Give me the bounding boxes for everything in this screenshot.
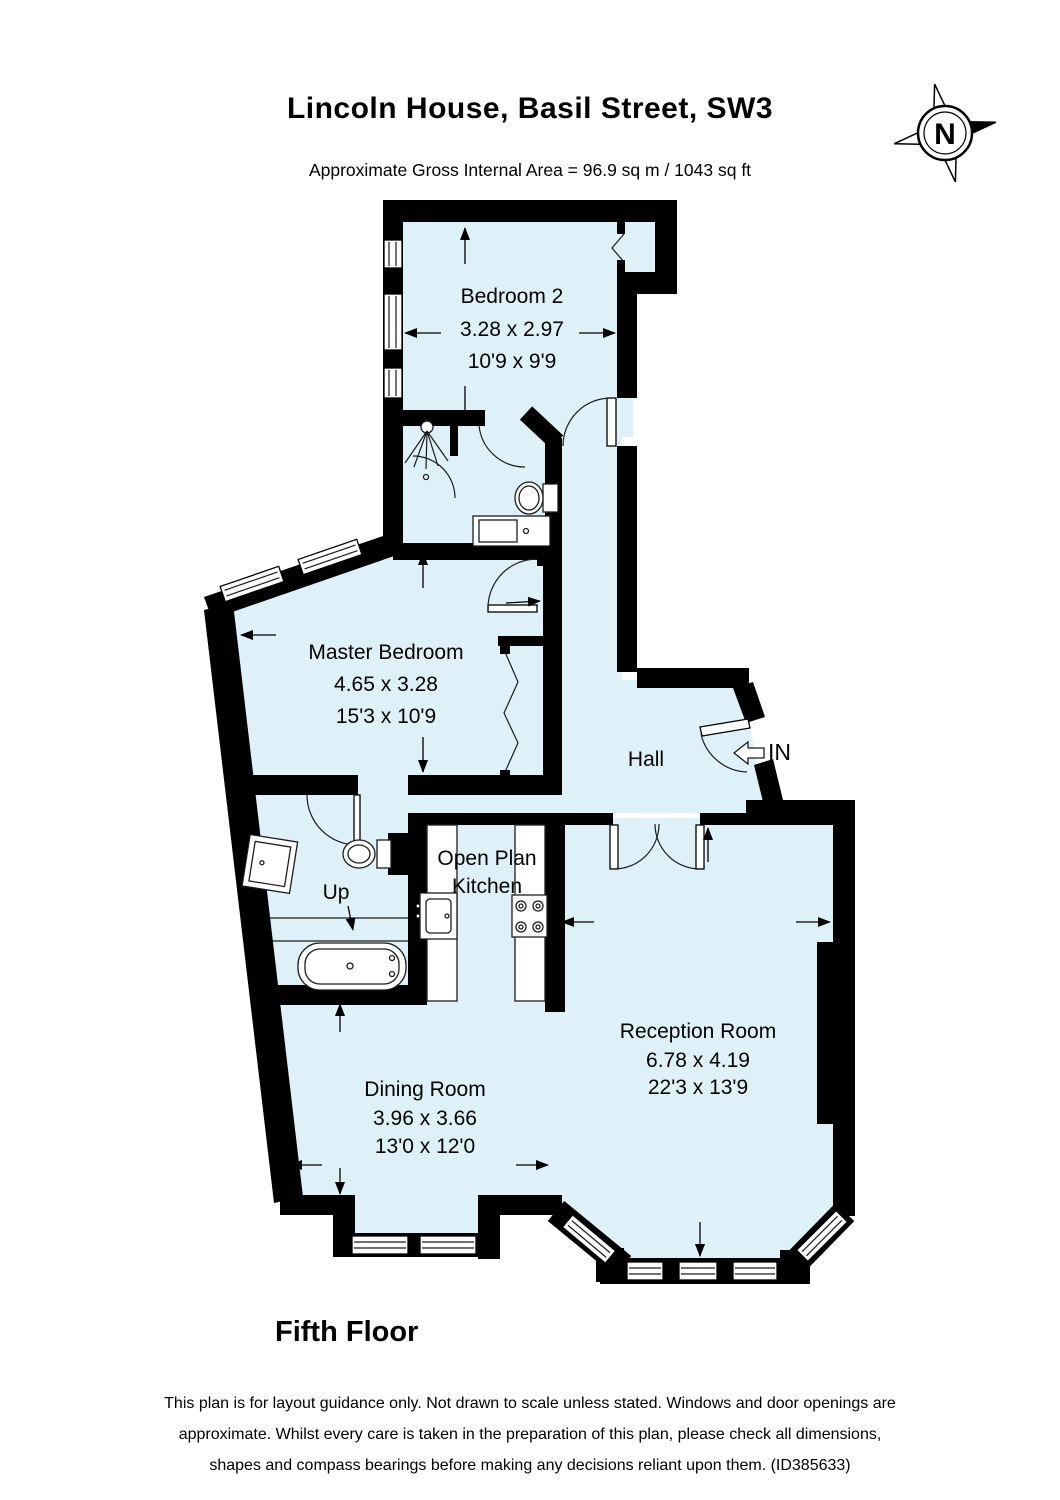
in-label: IN — [768, 739, 791, 765]
svg-text:15'3 x 10'9: 15'3 x 10'9 — [336, 705, 436, 728]
svg-text:22'3 x 13'9: 22'3 x 13'9 — [648, 1076, 748, 1099]
svg-text:13'0 x 12'0: 13'0 x 12'0 — [375, 1135, 475, 1158]
compass-north-label: N — [934, 118, 956, 151]
sink-icon — [473, 516, 550, 546]
svg-text:Master Bedroom: Master Bedroom — [308, 641, 463, 664]
room-label-bedroom2: Bedroom 2 3.28 x 2.97 10'9 x 9'9 — [460, 285, 564, 373]
svg-text:4.65 x 3.28: 4.65 x 3.28 — [334, 673, 438, 696]
kitchen-sink-icon — [416, 893, 457, 939]
svg-text:Open Plan: Open Plan — [437, 847, 536, 870]
window — [420, 1236, 476, 1254]
svg-text:Dining Room: Dining Room — [364, 1078, 485, 1101]
floorplan-canvas: Bedroom 2 3.28 x 2.97 10'9 x 9'9 Master … — [0, 0, 1060, 1500]
vanity-sink-icon — [242, 835, 298, 894]
toilet-icon — [343, 840, 391, 868]
window — [384, 294, 402, 350]
svg-text:6.78 x 4.19: 6.78 x 4.19 — [646, 1049, 750, 1072]
svg-text:Hall: Hall — [628, 748, 664, 771]
window — [384, 368, 402, 398]
room-label-dining: Dining Room 3.96 x 3.66 13'0 x 12'0 — [364, 1078, 485, 1158]
svg-text:Kitchen: Kitchen — [452, 875, 522, 898]
svg-text:Bedroom 2: Bedroom 2 — [461, 285, 564, 308]
svg-text:3.28 x 2.97: 3.28 x 2.97 — [460, 318, 564, 341]
toilet-icon — [515, 482, 558, 514]
room-label-hall: Hall — [628, 748, 664, 771]
disclaimer-text: This plan is for layout guidance only. N… — [158, 1388, 903, 1481]
svg-text:3.96 x 3.66: 3.96 x 3.66 — [373, 1107, 477, 1130]
stove-icon — [512, 895, 547, 937]
window — [352, 1236, 408, 1254]
window — [627, 1262, 663, 1280]
svg-text:Reception Room: Reception Room — [620, 1020, 776, 1043]
window — [384, 240, 402, 268]
up-label: Up — [323, 881, 350, 904]
bath-icon — [298, 943, 406, 990]
floorplan-page: Lincoln House, Basil Street, SW3 Approxi… — [0, 0, 1060, 1500]
window — [679, 1262, 717, 1280]
floor-name: Fifth Floor — [275, 1316, 418, 1349]
north-compass-icon: N — [884, 73, 1007, 192]
window — [733, 1262, 777, 1280]
svg-text:10'9 x 9'9: 10'9 x 9'9 — [468, 350, 557, 373]
